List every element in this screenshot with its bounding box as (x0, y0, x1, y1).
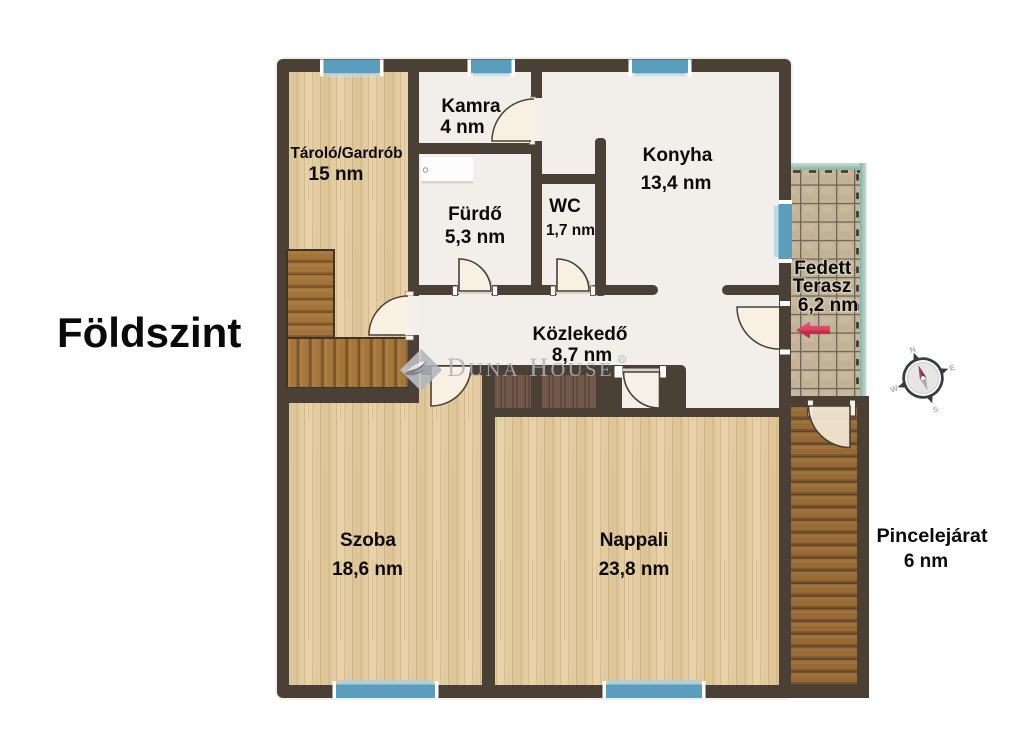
svg-text:Konyha: Konyha (643, 145, 713, 166)
svg-text:4 nm: 4 nm (440, 117, 484, 138)
svg-text:6,2 nm: 6,2 nm (798, 295, 858, 316)
svg-text:Szoba: Szoba (340, 530, 396, 551)
svg-text:Közlekedő: Közlekedő (532, 324, 627, 345)
svg-text:R: R (620, 358, 625, 364)
svg-text:WC: WC (549, 196, 581, 217)
svg-text:Kamra: Kamra (441, 96, 501, 117)
svg-text:Földszint: Földszint (57, 309, 241, 356)
svg-text:Nappali: Nappali (600, 530, 669, 551)
svg-text:6 nm: 6 nm (904, 551, 948, 572)
svg-text:5,3 nm: 5,3 nm (445, 227, 505, 248)
svg-text:15 nm: 15 nm (309, 164, 364, 185)
svg-text:Terasz: Terasz (793, 276, 852, 297)
svg-text:18,6 nm: 18,6 nm (332, 559, 403, 580)
svg-text:13,4 nm: 13,4 nm (641, 173, 712, 194)
svg-text:23,8 nm: 23,8 nm (599, 559, 670, 580)
svg-text:1,7 nm: 1,7 nm (546, 222, 595, 239)
svg-text:Tároló/Gardrób: Tároló/Gardrób (290, 145, 402, 162)
svg-text:Pincelejárat: Pincelejárat (876, 525, 987, 547)
svg-text:Fürdő: Fürdő (448, 204, 502, 225)
